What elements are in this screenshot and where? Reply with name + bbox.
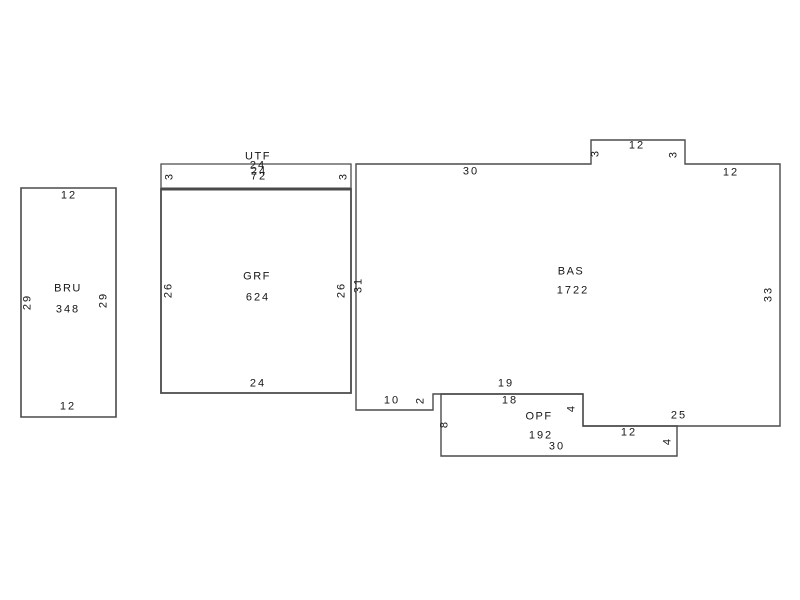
floorplan-svg bbox=[0, 0, 800, 600]
room-outline-BAS bbox=[356, 140, 780, 426]
room-outline-BRU bbox=[21, 188, 116, 417]
room-outline-OPF bbox=[441, 394, 677, 456]
floorplan-canvas: BRU34812122929UTF72332424GRF624262624BAS… bbox=[0, 0, 800, 600]
room-outline-UTF bbox=[161, 164, 351, 189]
room-outline-GRF bbox=[161, 189, 351, 393]
